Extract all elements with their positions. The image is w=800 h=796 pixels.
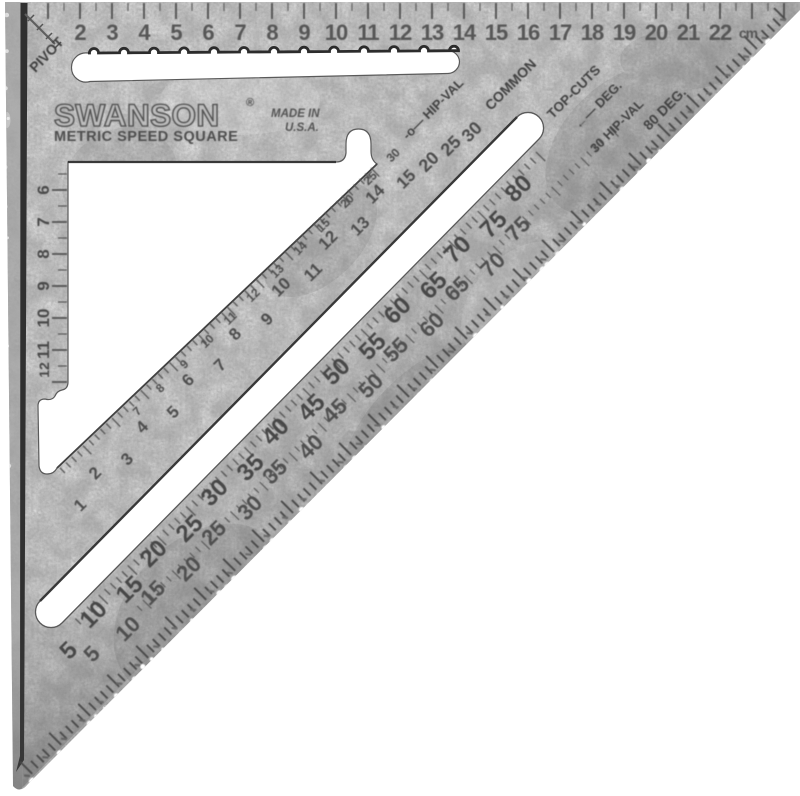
svg-text:SWANSON: SWANSON — [54, 97, 220, 133]
svg-text:15: 15 — [485, 20, 508, 45]
svg-text:8: 8 — [34, 249, 53, 258]
svg-text:2: 2 — [74, 20, 86, 45]
svg-text:17: 17 — [549, 20, 572, 45]
svg-text:®: ® — [246, 97, 254, 109]
svg-text:5: 5 — [170, 20, 182, 45]
svg-text:9: 9 — [34, 281, 53, 290]
svg-text:9: 9 — [298, 20, 310, 45]
svg-text:6: 6 — [202, 20, 214, 45]
svg-text:11: 11 — [34, 341, 53, 359]
svg-text:7: 7 — [34, 217, 53, 226]
svg-text:21: 21 — [677, 20, 700, 45]
svg-text:4: 4 — [138, 20, 151, 45]
svg-text:10: 10 — [34, 309, 53, 328]
svg-text:8: 8 — [266, 20, 278, 45]
svg-text:19: 19 — [613, 20, 636, 45]
svg-text:U.S.A.: U.S.A. — [285, 122, 319, 134]
svg-text:METRIC SPEED SQUARE: METRIC SPEED SQUARE — [54, 129, 238, 145]
svg-text:MADE IN: MADE IN — [271, 108, 320, 120]
svg-text:13: 13 — [421, 20, 444, 45]
svg-text:18: 18 — [581, 20, 604, 45]
svg-text:12: 12 — [389, 20, 412, 45]
svg-text:22: 22 — [709, 20, 732, 45]
svg-text:12: 12 — [36, 362, 52, 378]
svg-text:10: 10 — [325, 20, 348, 45]
svg-text:11: 11 — [357, 20, 379, 45]
svg-text:6: 6 — [34, 185, 53, 194]
svg-text:3: 3 — [106, 20, 118, 45]
svg-text:7: 7 — [234, 20, 246, 45]
svg-text:14: 14 — [453, 20, 477, 45]
svg-text:16: 16 — [517, 20, 540, 45]
svg-text:20: 20 — [645, 20, 668, 45]
svg-text:cm: cm — [739, 25, 758, 41]
